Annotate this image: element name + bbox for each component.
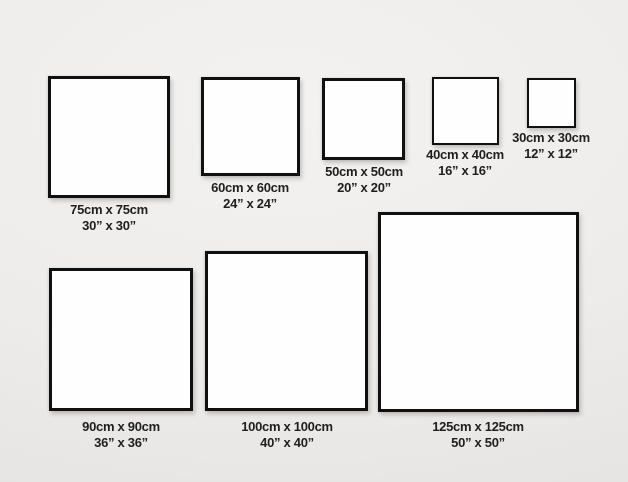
frame-90cm [49,268,193,411]
cm-dimension-text: 90cm x 90cm [82,419,160,435]
size-label-50cm: 50cm x 50cm 20” x 20” [325,164,403,195]
size-label-90cm: 90cm x 90cm 36” x 36” [82,419,160,450]
size-chart: 75cm x 75cm 30” x 30” 60cm x 60cm 24” x … [0,0,628,482]
inch-dimension-text: 30” x 30” [70,218,148,234]
frame-30cm [527,78,576,128]
frame-60cm [201,77,300,176]
frame-75cm [48,76,170,198]
size-label-75cm: 75cm x 75cm 30” x 30” [70,202,148,233]
size-label-125cm: 125cm x 125cm 50” x 50” [432,419,524,450]
cm-dimension-text: 75cm x 75cm [70,202,148,218]
inch-dimension-text: 40” x 40” [241,435,333,451]
frame-100cm [205,251,368,411]
inch-dimension-text: 20” x 20” [325,180,403,196]
cm-dimension-text: 60cm x 60cm [211,180,289,196]
size-label-100cm: 100cm x 100cm 40” x 40” [241,419,333,450]
inch-dimension-text: 16” x 16” [426,163,504,179]
frame-125cm [378,212,579,412]
cm-dimension-text: 125cm x 125cm [432,419,524,435]
inch-dimension-text: 12” x 12” [512,146,590,162]
frame-40cm [432,77,499,145]
cm-dimension-text: 100cm x 100cm [241,419,333,435]
cm-dimension-text: 30cm x 30cm [512,130,590,146]
size-label-30cm: 30cm x 30cm 12” x 12” [512,130,590,161]
inch-dimension-text: 36” x 36” [82,435,160,451]
cm-dimension-text: 40cm x 40cm [426,147,504,163]
frame-50cm [322,78,405,160]
cm-dimension-text: 50cm x 50cm [325,164,403,180]
size-label-40cm: 40cm x 40cm 16” x 16” [426,147,504,178]
inch-dimension-text: 50” x 50” [432,435,524,451]
inch-dimension-text: 24” x 24” [211,196,289,212]
size-label-60cm: 60cm x 60cm 24” x 24” [211,180,289,211]
